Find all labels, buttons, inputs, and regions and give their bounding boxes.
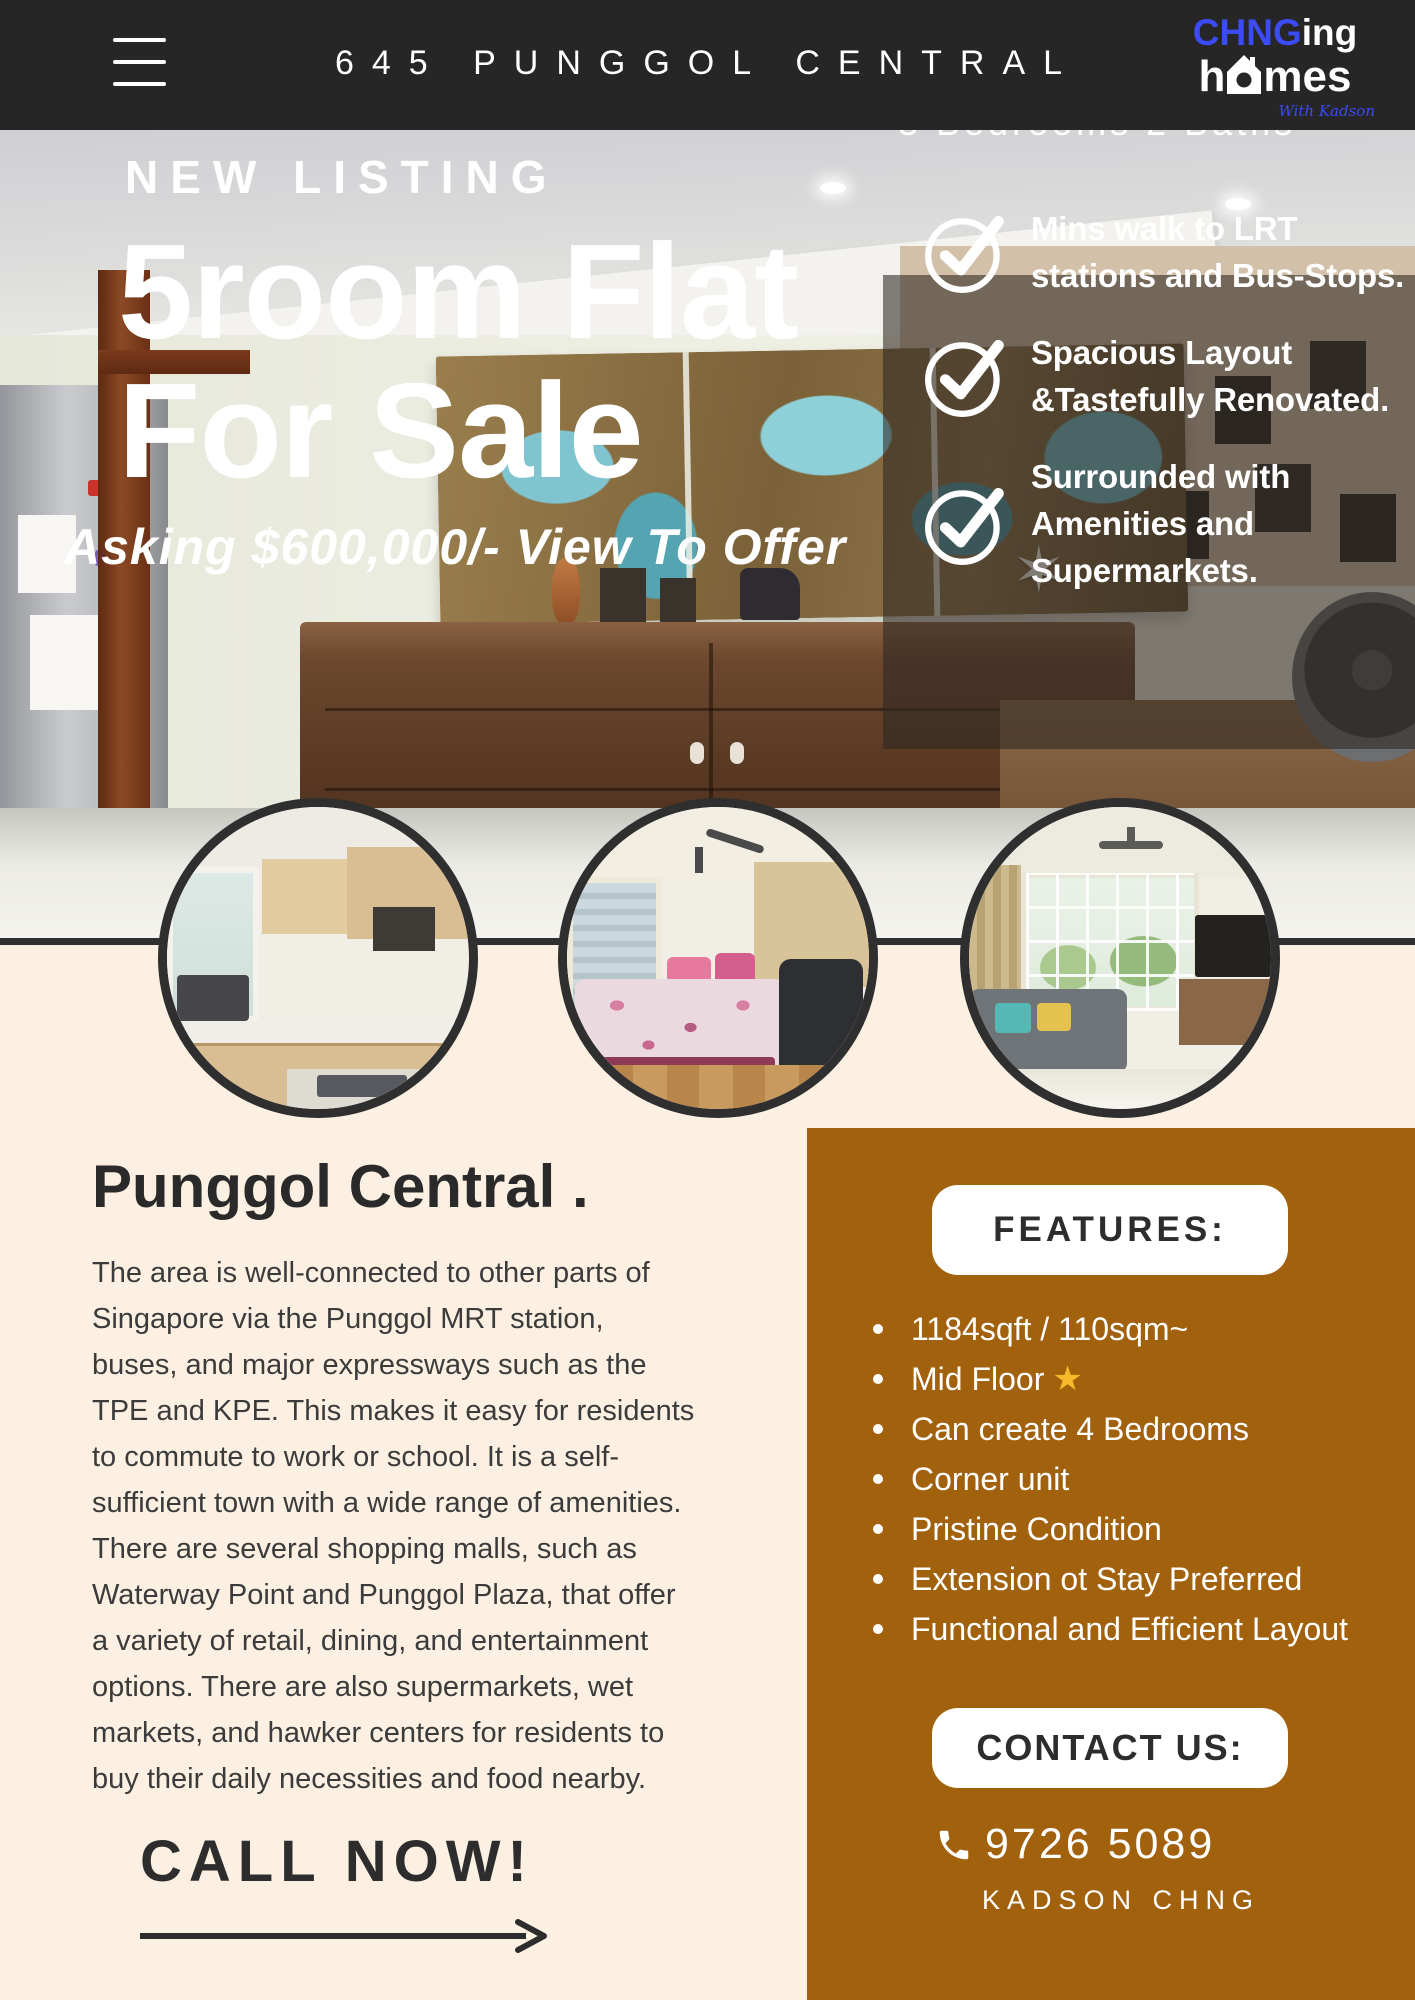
bullet-dot [873,1374,883,1384]
bullet-dot [873,1624,883,1634]
features-panel: FEATURES: 1184sqft / 110sqm~ Mid Floor★ … [807,1128,1415,2000]
features-title-pill: FEATURES: [932,1185,1288,1275]
bullet-dot [873,1324,883,1334]
checklist-item: Surrounded with Amenities and Supermarke… [921,453,1415,594]
logo-tagline: With Kadson [1175,104,1375,119]
feature-item: Corner unit [871,1454,1351,1504]
star-icon: ★ [1052,1360,1082,1398]
section-body-text: The area is well-connected to other part… [92,1250,696,1802]
highlights-checklist: Mins walk to LRT stations and Bus-Stops.… [883,145,1415,594]
photo-frame [660,578,696,624]
section-heading: Punggol Central . [92,1152,589,1221]
photo-bedroom [558,798,878,1118]
feature-item: 1184sqft / 110sqm~ [871,1304,1351,1354]
feature-item: Extension ot Stay Preferred [871,1554,1351,1604]
header-bar: 645 PUNGGOL CENTRAL CHNGing hmes With Ka… [0,0,1415,130]
contact-title-pill: CONTACT US: [932,1708,1288,1788]
headline-line2: For Sale [118,361,798,500]
checkmark-icon [921,331,1011,421]
feature-item: Can create 4 Bedrooms [871,1404,1351,1454]
flyer-page: 645 PUNGGOL CENTRAL CHNGing hmes With Ka… [0,0,1415,2000]
phone-icon [935,1826,973,1864]
phone-link[interactable]: 9726 5089 [935,1820,1215,1869]
bullet-dot [873,1524,883,1534]
bullet-dot [873,1574,883,1584]
bullet-dot [873,1474,883,1484]
checklist-item: Spacious Layout &Tastefully Renovated. [921,329,1415,423]
photo-living-room [960,798,1280,1118]
phone-number: 9726 5089 [985,1820,1215,1869]
headline: 5room Flat For Sale [118,222,798,500]
feature-item: Pristine Condition [871,1504,1351,1554]
asking-price: Asking $600,000/- View To Offer [64,518,846,576]
checklist-item: Mins walk to LRT stations and Bus-Stops. [921,205,1415,299]
headline-line1: 5room Flat [118,222,798,361]
right-arrow-icon [138,1918,548,1959]
checkmark-icon [921,207,1011,297]
photo-frame [600,568,646,624]
call-now-cta[interactable]: CALL NOW! [140,1828,534,1895]
feature-list: 1184sqft / 110sqm~ Mid Floor★ Can create… [871,1304,1351,1654]
logo-line1: CHNGing [1175,14,1375,51]
bullet-dot [873,1424,883,1434]
logo-line2: hmes [1175,53,1375,101]
house-icon [1225,53,1263,101]
checkmark-icon [921,479,1011,569]
photo-kitchen [158,798,478,1118]
feature-item: Functional and Efficient Layout [871,1604,1351,1654]
brand-logo: CHNGing hmes With Kadson [1175,14,1375,119]
agent-name: KADSON CHNG [982,1885,1260,1916]
new-listing-label: NEW LISTING [125,150,559,204]
feature-item: Mid Floor★ [871,1354,1351,1404]
